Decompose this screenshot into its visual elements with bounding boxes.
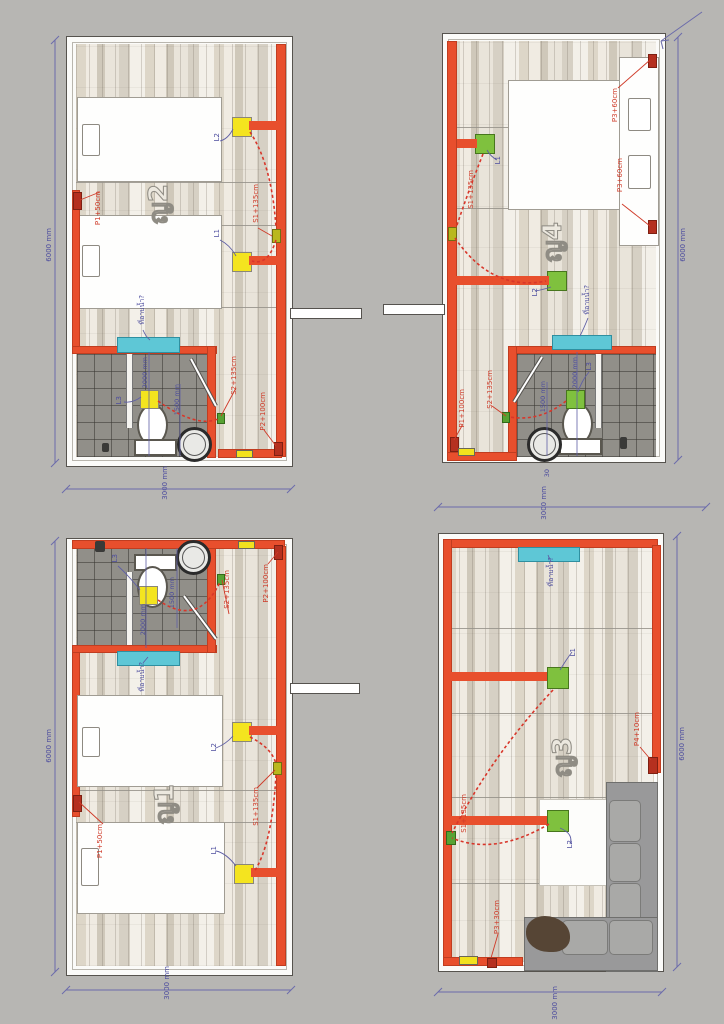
room3-wall-stub-l1 [450, 672, 549, 681]
room2-annotation-s1: S1+135cm [253, 184, 260, 223]
room2-guide-line [76, 182, 281, 183]
room4-dim-30: 30 [544, 469, 551, 477]
room4-outlet-mark-green [502, 412, 510, 423]
room3-label: ญ3 [550, 737, 576, 777]
room4-annotation-s1: S1+135cm [468, 170, 475, 209]
room2-outlet-p2 [274, 442, 283, 456]
room4-switch-l3-label: L3 [586, 362, 593, 370]
room2-outlet-p1 [73, 192, 82, 210]
room2-annotation-p2: P2+100cm [260, 392, 267, 431]
room4-annotation-s2: S2+135cm [487, 370, 494, 409]
room1-outlet-p1 [73, 795, 82, 812]
room4-junction-mark [448, 227, 457, 241]
room2-washbasin [117, 337, 180, 353]
room3-switch-l1 [547, 667, 569, 689]
room4-annotation-p1: P1+100cm [459, 389, 466, 428]
room4-annotation-p3-top: P3+60cm [612, 88, 619, 122]
room3-dim-height: 6000 mm [679, 727, 686, 761]
floorplan-canvas: ญ2 L2 L1 L3 S1+135cm P1+50cm S2+135cm P2… [0, 0, 724, 1024]
room1-wall-stub-l2 [249, 726, 277, 735]
room3-basin-label: ที่อาบน้ำ? [548, 557, 555, 587]
room4-wall-stub-l1 [457, 139, 477, 148]
room3-guide-line [446, 713, 654, 714]
room2-annotation-p1: P1+50cm [95, 191, 102, 225]
room4-washing-machine-icon [527, 427, 562, 462]
room1-annotation-p1: P1+50cm [97, 824, 104, 858]
room4-tap-icon [620, 437, 627, 449]
room1-bed-top-pillow [82, 727, 100, 757]
room2-switch-l2-label: L2 [214, 133, 221, 141]
room3-switch-l2-label: L2 [567, 840, 574, 848]
room3-dim-width: 3000 mm [552, 986, 559, 1020]
room3-wall-bottom-segment [443, 957, 523, 966]
room4-outlet-p3-bottom [648, 220, 657, 234]
room4-switch-l2-label: L2 [532, 288, 539, 296]
room4-switch-l3 [566, 390, 585, 409]
room2-toilet-tank [134, 439, 177, 456]
room1-dim-height: 6000 mm [46, 729, 53, 763]
room2-dim-bath-depth: 2000 mm [142, 357, 149, 388]
room4-pillow-bottom [628, 155, 651, 189]
room4-outlet-p3-top [648, 54, 657, 68]
room1-outlet-p2 [274, 545, 283, 560]
room2-floor-drain-icon [102, 443, 109, 452]
room2-dim-bath-width: 1500 mm [174, 384, 181, 415]
room3-sofa-cushion [609, 920, 653, 955]
room1-shower-head-icon [95, 541, 105, 552]
room1-dim-bath-width: 1500 mm [169, 577, 176, 608]
room4-dim-height: 6000 mm [680, 228, 687, 262]
room2-wall-right [276, 44, 286, 457]
room3-outlet-yellow [459, 956, 478, 965]
room2-outlet-mark-green [217, 413, 225, 424]
room4-dim-bath-width: 1500 mm [540, 381, 547, 412]
room4-basin-label: ที่อาบน้ำ? [584, 285, 591, 315]
room2-junction-mark [272, 229, 281, 243]
room2-wall-stub-l1 [249, 256, 277, 265]
room2-wall-left-segment [72, 190, 80, 352]
room2-washing-machine-icon [177, 427, 212, 462]
room2-basin-label: ที่อาบน้ำ? [139, 295, 146, 325]
room3-annotation-p3: P3+30cm [494, 900, 501, 934]
room3-junction-mark [446, 831, 456, 845]
room3-guide-line [446, 628, 654, 629]
room1-annotation-p2: P2+100cm [263, 564, 270, 603]
room1-switch-l1-label: L1 [211, 846, 218, 854]
room1-switch-l3 [139, 586, 158, 605]
room4-door-leaf [383, 304, 445, 315]
room2-dim-width: 3000 mm [162, 466, 169, 500]
room4-washbasin [552, 335, 612, 350]
room1-switch-l3-label: L3 [112, 554, 119, 562]
room2-switch-l3 [140, 390, 159, 409]
room3-switch-l2 [547, 810, 569, 832]
room1-annotation-s2: S2+135cm [224, 570, 231, 609]
room4-outlet-yellow [458, 448, 475, 456]
room2-outlet-yellow [236, 450, 253, 458]
room4-label: ญ4 [540, 222, 566, 262]
room2-switch-l3-label: L3 [116, 396, 123, 404]
room3-switch-l1-label: L1 [570, 648, 577, 656]
room2-annotation-s2: S2+135cm [231, 356, 238, 395]
room3-annotation-s1: S1+135cm [461, 794, 468, 833]
room2-bed-bottom-pillow [82, 245, 100, 277]
room3-outlet-p3 [487, 958, 497, 968]
room4-wall-left [447, 41, 457, 453]
room3-sofa-cushion [609, 800, 641, 842]
room2-label: ญ2 [146, 184, 172, 224]
room4-switch-l2 [547, 271, 567, 291]
room1-washbasin [117, 651, 180, 666]
room3-sofa-cushion [609, 843, 641, 882]
room1-switch-l2-label: L2 [211, 743, 218, 751]
room2-bed-top-pillow [82, 124, 100, 156]
room1-washing-machine-icon [176, 540, 211, 575]
room2-wall-stub-l2 [249, 121, 277, 130]
room4-annotation-p3-bottom: P3+60cm [617, 158, 624, 192]
room4-bed-headboard [619, 57, 659, 246]
room4-toilet-tank [559, 438, 602, 455]
room1-annotation-s1: S1+135cm [253, 787, 260, 826]
room3-annotation-p4: P4+10cm [634, 712, 641, 746]
room2-switch-l1-label: L1 [214, 229, 221, 237]
room1-dim-width: 3000 mm [164, 966, 171, 1000]
room3-wall-right-segment [652, 545, 661, 773]
room4-wall-stub-l2 [456, 276, 549, 285]
room4-bathroom-wall-left [508, 346, 517, 458]
room1-wall-stub-l1 [251, 868, 278, 877]
room3-outlet-p4 [648, 757, 658, 774]
room4-switch-l1 [475, 134, 495, 154]
room1-dim-bath-depth: 2000 mm [140, 604, 147, 635]
room1-label: ญ1 [152, 784, 178, 824]
room1-bathroom-partition [126, 572, 133, 646]
room1-basin-label: ที่อาบน้ำ? [139, 662, 146, 692]
room4-switch-l1-label: L1 [495, 156, 502, 164]
room4-dim-bath-depth: 2000 mm [572, 357, 579, 388]
room4-bathroom-partition [595, 354, 602, 428]
room4-bed [508, 80, 624, 210]
room2-dim-height: 6000 mm [46, 228, 53, 262]
room3-wall-left [443, 539, 452, 963]
room2-door-leaf [290, 308, 362, 319]
room4-dim-width: 3000 mm [541, 486, 548, 520]
room1-outlet-yellow [238, 541, 255, 549]
room1-door-leaf [290, 683, 360, 694]
room1-junction-mark [273, 762, 282, 775]
room1-wall-right [276, 546, 286, 966]
room2-bathroom-partition [126, 354, 133, 428]
room4-pillow-top [628, 98, 651, 131]
